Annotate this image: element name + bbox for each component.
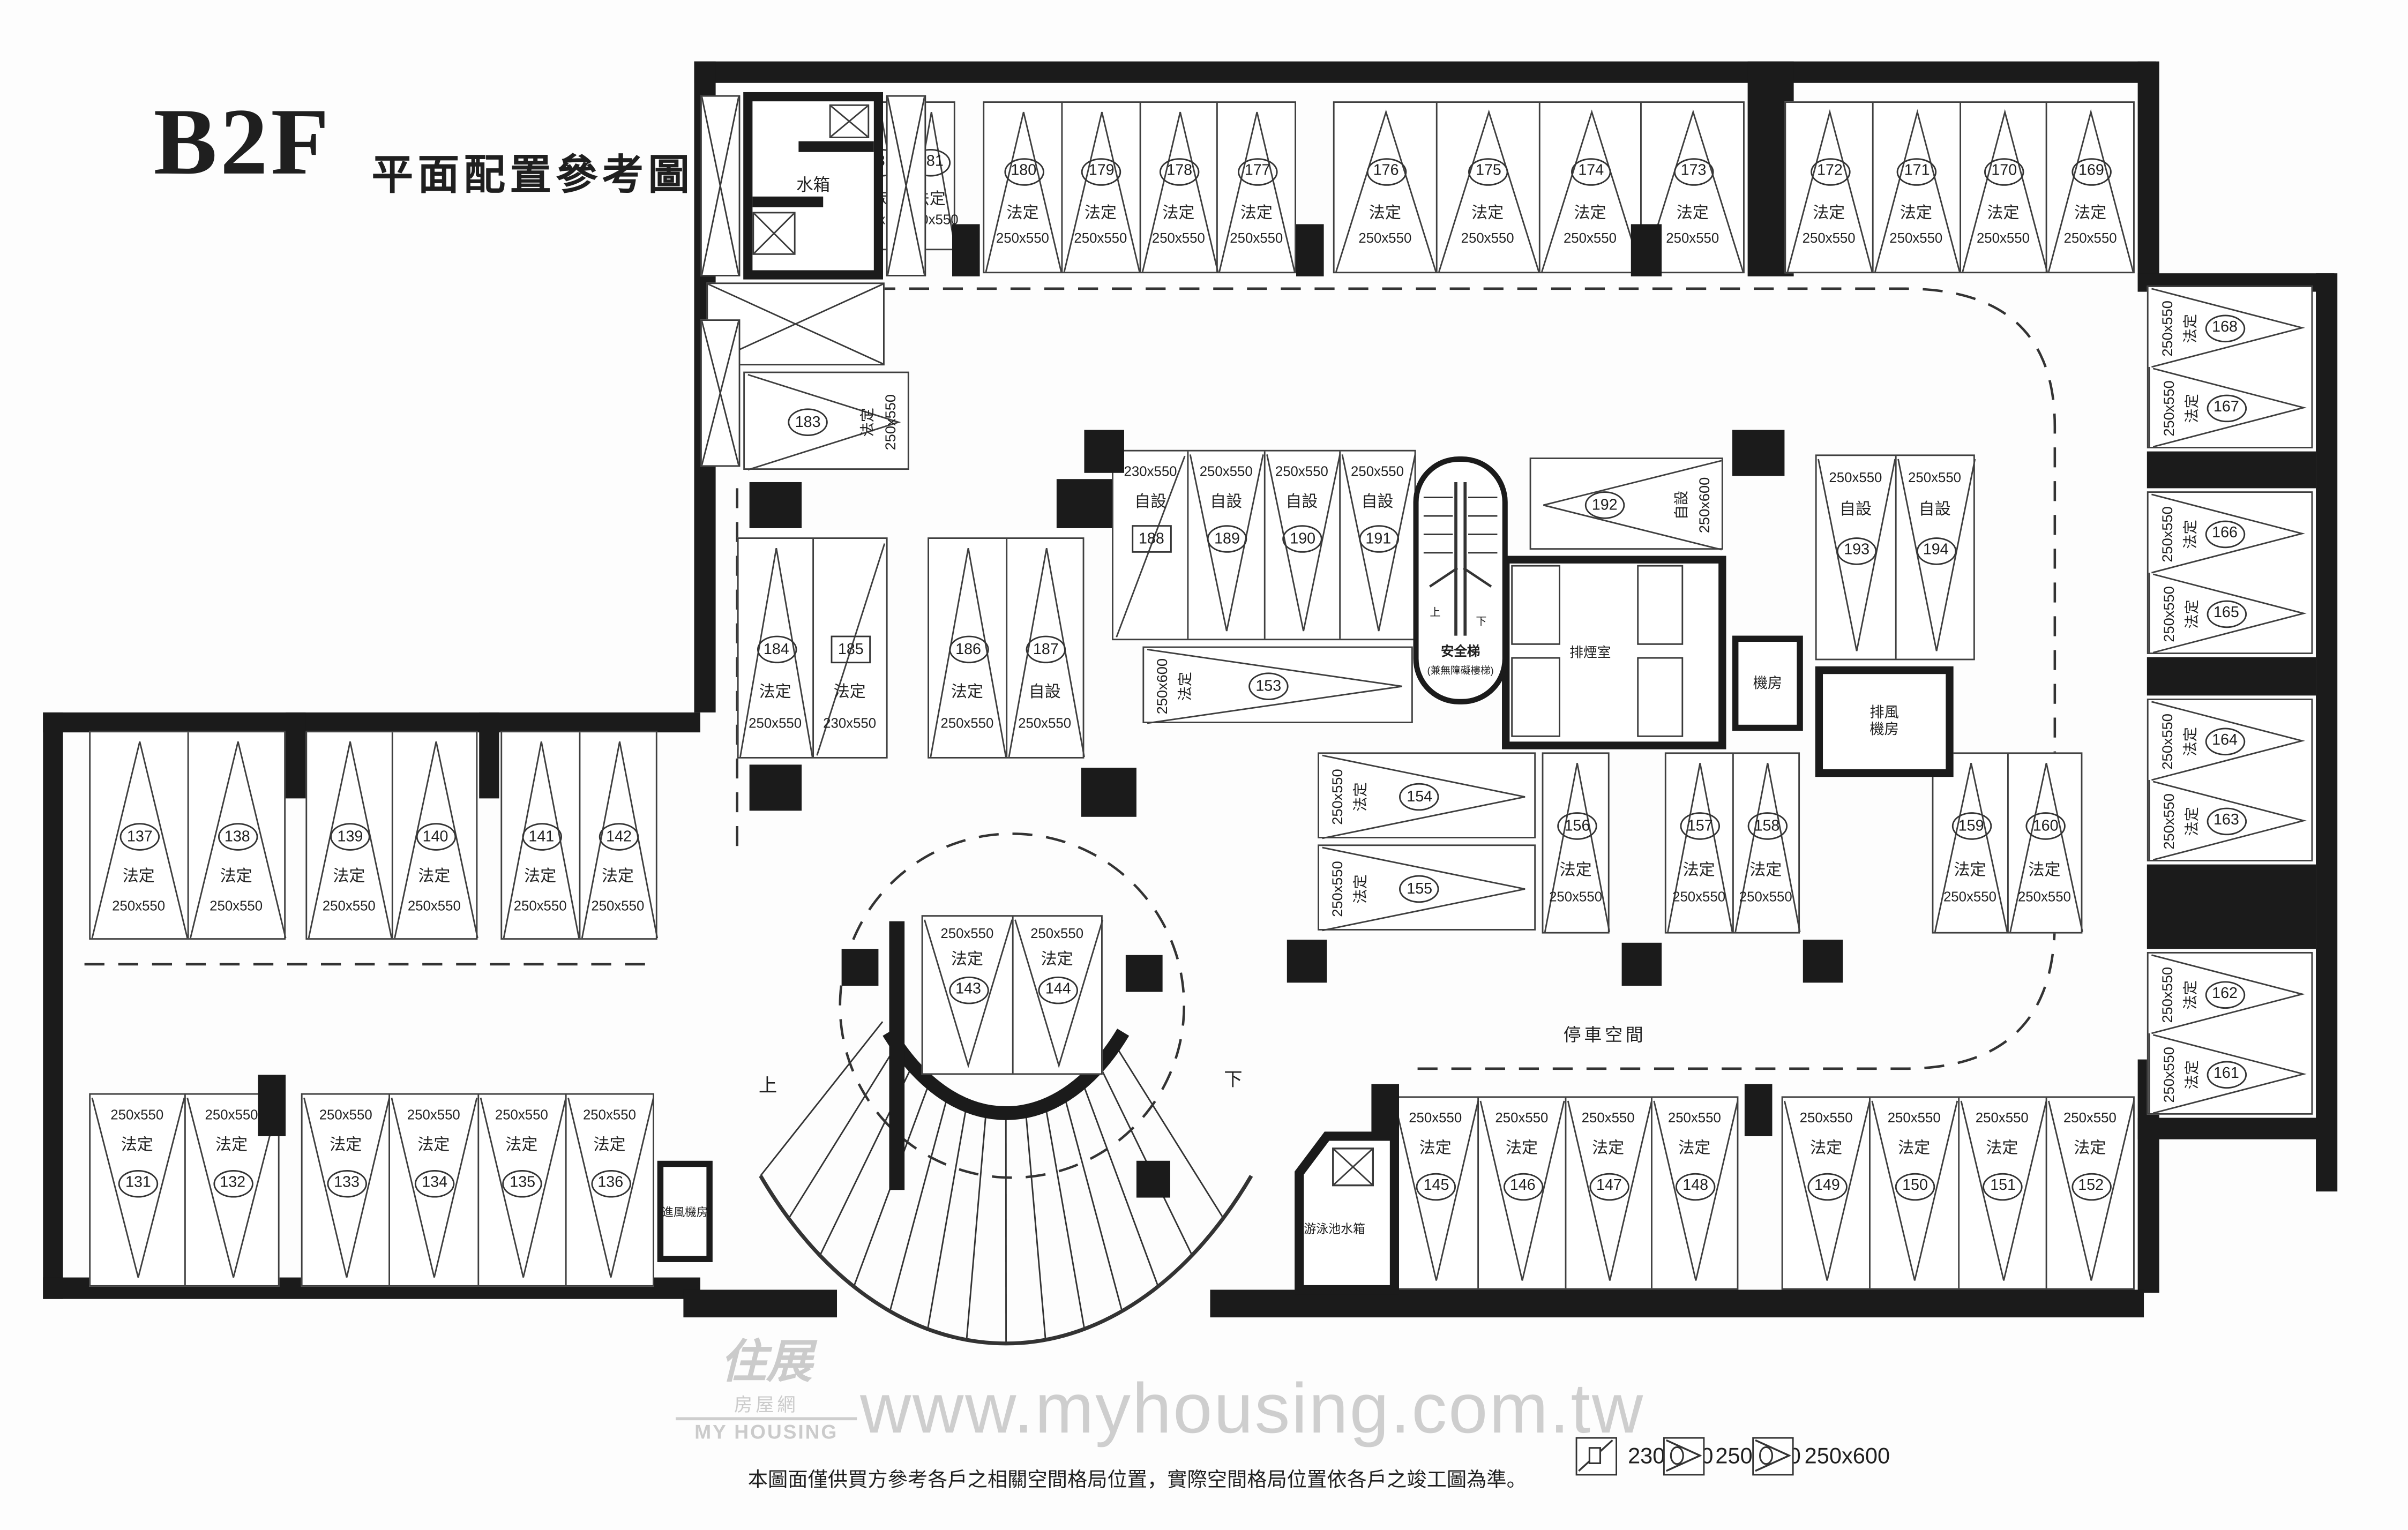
- stall-group: 法定250x550183: [743, 372, 909, 470]
- room-water-tank-label: 水箱: [796, 177, 830, 194]
- parking-stall-146: 法定250x550146: [1478, 1098, 1564, 1288]
- stall-type: 法定: [1959, 1136, 2045, 1159]
- stall-type: 法定: [580, 865, 656, 888]
- stall-number: 131: [118, 1170, 159, 1198]
- stall-number: 179: [1081, 158, 1121, 186]
- parking-stall-170: 法定250x550170: [1959, 103, 2046, 272]
- column: [286, 712, 305, 799]
- parking-stall-190: 自設250x550190: [1263, 452, 1338, 639]
- stall-size: 250x550: [739, 715, 812, 731]
- stall-size: 250x550: [1652, 1111, 1737, 1127]
- parking-stall-175: 法定250x550175: [1435, 103, 1538, 272]
- stall-number: 148: [1676, 1173, 1716, 1201]
- stall-type: 法定: [1013, 947, 1101, 970]
- stall-group: 法定250x550137法定250x550138: [89, 731, 286, 940]
- stall-group: 法定250x550145法定250x550146法定250x550147法定25…: [1392, 1096, 1739, 1289]
- stall-group: 法定250x550156: [1542, 752, 1610, 933]
- stall-type: 法定: [185, 1134, 278, 1157]
- ramp-down-label: 下: [1224, 1066, 1242, 1092]
- parking-stall-143: 法定250x550143: [923, 917, 1012, 1073]
- stall-size: 250x550: [1566, 1111, 1650, 1127]
- parking-stall-168: 250x550法定168: [2149, 287, 2312, 367]
- column: [1287, 940, 1327, 982]
- watermark-url: www.myhousing.com.tw: [860, 1367, 1644, 1450]
- column: [842, 949, 879, 986]
- wall: [2147, 452, 2316, 489]
- parking-stall-164: 250x550法定164: [2149, 700, 2312, 780]
- stall-size: 250x550: [91, 898, 186, 914]
- stall-type: 自設: [1817, 498, 1895, 521]
- stall-size: 250x550: [188, 898, 284, 914]
- stall-number: 147: [1589, 1173, 1629, 1201]
- stall-number: 152: [2071, 1173, 2111, 1201]
- stall-type: 法定: [1871, 1136, 1957, 1159]
- stall-side-label: 250x550法定: [2155, 1038, 2207, 1110]
- stall-type: 法定: [307, 865, 391, 888]
- stall-side-label: 法定250x550: [854, 378, 906, 467]
- room-smoke-label: 排煙室: [1569, 642, 1611, 662]
- wall: [2147, 657, 2316, 696]
- legend-label: 250x600: [1805, 1444, 1890, 1469]
- stall-size: 250x550: [1393, 1111, 1478, 1127]
- hatch-area: [700, 319, 741, 467]
- column: [1084, 430, 1124, 473]
- stall-group: 自設250x550193自設250x550194: [1815, 454, 1975, 660]
- column: [1745, 1084, 1773, 1136]
- stall-number: 172: [1810, 158, 1850, 186]
- parking-stall-184: 法定250x550184: [739, 539, 812, 757]
- stall-size: 250x550: [1817, 470, 1895, 486]
- stall-size: 250x550: [303, 1108, 389, 1123]
- stall-side-label: 250x550法定: [2155, 372, 2207, 444]
- parking-stall-151: 法定250x550151: [1957, 1098, 2045, 1288]
- parking-stall-153: 250x600法定153: [1144, 648, 1411, 722]
- elevator-shaft: [1511, 657, 1560, 737]
- stall-size: 250x550: [1871, 1111, 1957, 1127]
- room-intake-fan-label: 進風機房: [662, 1203, 708, 1220]
- parking-stall-131: 法定250x550131: [91, 1095, 183, 1285]
- parking-stall-145: 法定250x550145: [1393, 1098, 1478, 1288]
- stall-size: 250x550: [1896, 470, 1973, 486]
- stall-group: 法定250x550180法定250x550179法定250x550178法定25…: [983, 101, 1296, 273]
- stall-size: 250x550: [1479, 1111, 1564, 1127]
- elevator-shaft: [1637, 565, 1683, 645]
- stall-type: 自設: [1189, 489, 1263, 512]
- stall-size: 250x550: [1959, 1111, 2045, 1127]
- stall-type: 法定: [1783, 1136, 1869, 1159]
- parking-stall-136: 法定250x550136: [565, 1095, 653, 1285]
- stall-side-label: 250x550法定: [2153, 705, 2205, 777]
- wall: [2138, 62, 2159, 292]
- parking-stall-134: 法定250x550134: [389, 1095, 477, 1285]
- stall-type: 法定: [2047, 201, 2133, 224]
- stall-number: 187: [1026, 636, 1066, 664]
- stall-type: 法定: [1786, 201, 1872, 224]
- parking-stall-186: 法定250x550186: [929, 539, 1005, 757]
- stall-size: 250x550: [391, 1108, 477, 1123]
- stall-number: 135: [503, 1170, 543, 1198]
- stall-type: 法定: [1437, 201, 1538, 224]
- parking-stall-165: 250x550法定165: [2149, 573, 2312, 652]
- stall-type: 法定: [1393, 1136, 1478, 1159]
- column: [1622, 943, 1662, 986]
- parking-stall-194: 自設250x550194: [1894, 456, 1973, 658]
- stall-type: 法定: [1733, 858, 1798, 881]
- stall-size: 250x550: [566, 1108, 653, 1123]
- wall: [694, 62, 2156, 83]
- stall-side-label: 250x550法定: [2155, 577, 2207, 650]
- parking-stall-139: 法定250x550139: [307, 732, 391, 938]
- stall-size: 250x550: [923, 926, 1012, 941]
- stall-number: 144: [1038, 976, 1078, 1004]
- stall-size: 250x550: [1437, 230, 1538, 246]
- stall-side-label: 250x550法定: [1324, 759, 1376, 835]
- stall-size: 250x550: [502, 898, 578, 914]
- parking-stall-155: 250x550法定155: [1319, 846, 1534, 929]
- stall-type: 法定: [91, 1134, 183, 1157]
- stall-side-label: 250x600法定: [1149, 652, 1201, 720]
- stall-number: 142: [599, 823, 639, 851]
- stall-number: 170: [1984, 158, 2024, 186]
- stall-group: 250x600法定153: [1142, 647, 1412, 723]
- stall-side-label: 250x550法定: [2155, 785, 2207, 857]
- parking-stall-163: 250x550法定163: [2149, 780, 2312, 860]
- column: [1296, 224, 1324, 276]
- stall-group: 法定250x550149法定250x550150法定250x550151法定25…: [1782, 1096, 2135, 1289]
- parking-stall-160: 法定250x550160: [2007, 754, 2081, 932]
- parking-stall-162: 250x550法定162: [2149, 954, 2312, 1033]
- stall-group: 250x550法定164250x550法定163: [2147, 699, 2313, 861]
- parking-stall-150: 法定250x550150: [1869, 1098, 1957, 1288]
- stall-type: 法定: [1642, 201, 1743, 224]
- stall-type: 法定: [739, 680, 812, 703]
- stall-group: 法定250x550133法定250x550134法定250x550135法定25…: [301, 1093, 654, 1287]
- parking-stall-152: 法定250x550152: [2045, 1098, 2133, 1288]
- stair-up-label: 上: [1430, 605, 1440, 620]
- column: [1136, 1161, 1170, 1198]
- stall-type: 法定: [923, 947, 1012, 970]
- elevator-shaft: [1637, 657, 1683, 737]
- stall-type: 法定: [303, 1134, 389, 1157]
- stall-type: 法定: [1479, 1136, 1564, 1159]
- stall-size: 250x550: [1961, 230, 2046, 246]
- stall-number: 139: [330, 823, 370, 851]
- parking-stall-185: 法定230x550185: [812, 539, 886, 757]
- stall-group: 250x550法定155: [1318, 844, 1536, 931]
- stall-number: 186: [948, 636, 989, 664]
- stall-group: 法定250x550172法定250x550171法定250x550170法定25…: [1784, 101, 2134, 273]
- stall-number: 134: [415, 1170, 455, 1198]
- watermark-brand-bottom: MY HOUSING: [676, 1417, 857, 1443]
- parking-stall-147: 法定250x550147: [1564, 1098, 1650, 1288]
- parking-stall-169: 法定250x550169: [2046, 103, 2133, 272]
- stall-type: 法定: [1539, 201, 1640, 224]
- room-intake-fan: 進風機房: [657, 1161, 713, 1262]
- column: [1057, 479, 1112, 528]
- stall-number: 146: [1502, 1173, 1543, 1201]
- stall-type: 自設: [1265, 489, 1338, 512]
- stall-size: 250x550: [1189, 464, 1263, 479]
- stall-number: 174: [1571, 158, 1611, 186]
- stall-number: 169: [2072, 158, 2112, 186]
- parking-stall-133: 法定250x550133: [303, 1095, 389, 1285]
- room-exhaust-fan-label-2: 機房: [1869, 722, 1899, 739]
- stall-group: 250x550法定162250x550法定161: [2147, 952, 2313, 1115]
- wall: [2147, 865, 2316, 949]
- stall-type: 自設: [1896, 498, 1973, 521]
- stall-side-label: 自設250x600: [1668, 464, 1720, 547]
- stall-type: 法定: [1335, 201, 1435, 224]
- room-pool-tank: [1293, 1130, 1401, 1296]
- stall-type: 法定: [813, 680, 886, 703]
- stall-type: 法定: [1140, 201, 1217, 224]
- stall-number: 141: [521, 823, 562, 851]
- stall-size: 250x550: [91, 1108, 183, 1123]
- wall: [2316, 273, 2337, 1191]
- parking-stall-178: 法定250x550178: [1139, 103, 1216, 272]
- stall-type: 法定: [2008, 858, 2081, 881]
- disclaimer-text: 本圖面僅供買方參考各戶之相關空間格局位置，實際空間格局位置依各戶之竣工圖為準。: [748, 1463, 1527, 1492]
- legend-symbol-circle: [1752, 1437, 1793, 1476]
- stall-number: 178: [1160, 158, 1200, 186]
- stall-type: 法定: [1666, 858, 1732, 881]
- stall-type: 法定: [91, 865, 186, 888]
- parking-stall-189: 自設250x550189: [1187, 452, 1263, 639]
- watermark-brand-top: 住展: [676, 1324, 857, 1391]
- stall-size: 250x550: [1543, 889, 1607, 904]
- stall-number: 137: [120, 823, 160, 851]
- stall-number: 143: [948, 976, 989, 1004]
- stall-size: 250x550: [1140, 230, 1217, 246]
- stall-type: 法定: [1543, 858, 1607, 881]
- stall-number: 193: [1837, 537, 1877, 565]
- stall-number: 153: [1248, 672, 1289, 700]
- stall-size: 250x550: [392, 898, 476, 914]
- stall-type: 法定: [929, 680, 1005, 703]
- stall-number: 175: [1469, 158, 1509, 186]
- stall-group: 法定250x550139法定250x550140: [305, 731, 477, 940]
- parking-stall-148: 法定250x550148: [1650, 1098, 1737, 1288]
- legend-item-250x600: 250x600: [1752, 1437, 1890, 1476]
- stall-size: 250x550: [478, 1108, 565, 1123]
- parking-stall-166: 250x550法定166: [2149, 493, 2312, 573]
- stall-group: 自設230x550188自設250x550189自設250x550190自設25…: [1112, 450, 1416, 640]
- stall-size: 250x550: [1539, 230, 1640, 246]
- stall-group: 自設250x600192: [1530, 457, 1723, 550]
- stall-number: 140: [415, 823, 455, 851]
- parking-stall-177: 法定250x550177: [1217, 103, 1295, 272]
- stall-size: 230x550: [813, 715, 886, 731]
- watermark-brand: 住展 房屋網 MY HOUSING: [676, 1324, 857, 1444]
- stall-side-label: 250x550法定: [2153, 292, 2205, 364]
- ramp-up-label: 上: [759, 1072, 777, 1098]
- parking-stall-158: 法定250x550158: [1732, 754, 1799, 932]
- stall-group: 法定250x550157法定250x550158: [1665, 752, 1800, 933]
- column: [889, 921, 904, 1190]
- parking-stall-138: 法定250x550138: [186, 732, 284, 938]
- stall-number: 136: [590, 1170, 631, 1198]
- stall-size: 230x550: [1113, 464, 1187, 479]
- parking-stall-154: 250x550法定154: [1319, 754, 1534, 837]
- stall-type: 法定: [1652, 1136, 1737, 1159]
- stall-number: 145: [1416, 1173, 1456, 1201]
- safety-stair: 上 下 安全梯 (兼無障礙樓梯): [1411, 454, 1509, 706]
- legend-symbol-circle: [1663, 1437, 1704, 1476]
- stall-size: 250x550: [307, 898, 391, 914]
- stall-size: 250x550: [2008, 889, 2081, 904]
- wall: [43, 712, 63, 1299]
- room-machine-label: 機房: [1753, 675, 1783, 692]
- column: [1732, 430, 1784, 476]
- stall-number: 176: [1366, 158, 1406, 186]
- stall-type: 法定: [502, 865, 578, 888]
- column: [750, 764, 802, 811]
- stall-group: 法定250x550186自設250x550187: [928, 537, 1084, 759]
- elevator-shaft: [1511, 565, 1560, 645]
- stall-type: 自設: [1007, 680, 1083, 703]
- stall-size: 250x550: [984, 230, 1061, 246]
- stall-type: 法定: [392, 865, 476, 888]
- stall-group: 法定250x550141法定250x550142: [500, 731, 657, 940]
- column: [1631, 224, 1662, 276]
- parking-stall-137: 法定250x550137: [91, 732, 186, 938]
- room-exhaust-fan: 排風 機房: [1815, 666, 1954, 777]
- room-pool-tank-label: 游泳池水箱: [1304, 1221, 1365, 1238]
- stall-number: 173: [1673, 158, 1714, 186]
- stall-size: 250x550: [580, 898, 656, 914]
- parking-stall-135: 法定250x550135: [477, 1095, 565, 1285]
- stall-side-label: 250x550法定: [1324, 851, 1376, 927]
- stall-type: 自設: [1113, 489, 1187, 512]
- stall-number: 189: [1207, 525, 1247, 553]
- column: [479, 712, 499, 799]
- room-exhaust-fan-label-1: 排風: [1869, 705, 1899, 722]
- parking-stall-167: 250x550法定167: [2149, 367, 2312, 447]
- parking-stall-161: 250x550法定161: [2149, 1033, 2312, 1113]
- stall-number: 194: [1916, 537, 1956, 565]
- hatch-area: [752, 212, 795, 255]
- stall-number: 171: [1897, 158, 1937, 186]
- stall-number: 180: [1004, 158, 1044, 186]
- hatch-area: [700, 95, 741, 276]
- stall-type: 法定: [566, 1134, 653, 1157]
- stall-type: 法定: [1218, 201, 1295, 224]
- parking-stall-188: 自設230x550188: [1113, 452, 1187, 639]
- stall-size: 250x550: [1013, 926, 1101, 941]
- stall-number: 167: [2207, 394, 2247, 422]
- parking-stall-174: 法定250x550174: [1538, 103, 1640, 272]
- stair-label-1: 安全梯: [1441, 642, 1480, 660]
- parking-stall-144: 法定250x550144: [1011, 917, 1101, 1073]
- parking-stall-171: 法定250x550171: [1872, 103, 1959, 272]
- stall-type: 法定: [984, 201, 1061, 224]
- stall-group: 法定250x550176法定250x550175法定250x550174法定25…: [1333, 101, 1745, 273]
- parking-stall-180: 法定250x550180: [984, 103, 1061, 272]
- wall: [683, 1290, 837, 1318]
- room-machine: 機房: [1732, 636, 1803, 731]
- stall-side-label: 250x550法定: [2153, 498, 2205, 570]
- stall-type: 法定: [1873, 201, 1959, 224]
- stall-type: 法定: [1933, 858, 2006, 881]
- column: [1803, 940, 1843, 982]
- stall-size: 250x550: [1783, 1111, 1869, 1127]
- stall-group: 法定250x550143法定250x550144: [922, 915, 1103, 1075]
- floorplan-page: B2F 平面配置參考圖 水箱 進風機房 游泳池水箱 排煙室 機房 排風 機房: [0, 0, 2408, 1530]
- parking-area-label: 停車空間: [1564, 1023, 1647, 1047]
- stall-type: 自設: [1340, 489, 1414, 512]
- stall-size: 250x550: [1340, 464, 1414, 479]
- stall-size: 250x550: [1265, 464, 1338, 479]
- stall-group: 法定250x550184法定230x550185: [737, 537, 888, 759]
- parking-stall-172: 法定250x550172: [1786, 103, 1872, 272]
- stall-size: 250x550: [1933, 889, 2006, 904]
- stall-number: 132: [213, 1170, 253, 1198]
- parking-stall-140: 法定250x550140: [391, 732, 476, 938]
- stall-side-label: 250x550法定: [2153, 958, 2205, 1030]
- stall-group: 250x550法定166250x550法定165: [2147, 491, 2313, 654]
- parking-stall-142: 法定250x550142: [578, 732, 656, 938]
- column: [258, 1075, 286, 1136]
- stall-type: 法定: [188, 865, 284, 888]
- stall-number: 192: [1584, 491, 1625, 519]
- stall-size: 250x550: [1218, 230, 1295, 246]
- column: [1126, 955, 1163, 992]
- stall-size: 250x550: [1007, 715, 1083, 731]
- parking-stall-183: 法定250x550183: [745, 373, 908, 468]
- stall-size: 250x550: [2047, 230, 2133, 246]
- legend-symbol-square: [1576, 1437, 1617, 1476]
- parking-stall-191: 自設250x550191: [1339, 452, 1415, 639]
- stair-down-label: 下: [1476, 614, 1486, 629]
- stall-number: 185: [831, 636, 871, 664]
- stall-number: 133: [327, 1170, 367, 1198]
- stall-size: 250x550: [1786, 230, 1872, 246]
- wall: [43, 712, 700, 732]
- watermark-brand-mid: 房屋網: [676, 1391, 857, 1417]
- parking-stall-176: 法定250x550176: [1335, 103, 1435, 272]
- stall-size: 250x550: [1666, 889, 1732, 904]
- stair-label-2: (兼無障礙樓梯): [1427, 662, 1494, 677]
- parking-stall-193: 自設250x550193: [1817, 456, 1895, 658]
- stall-group: 法定250x550159法定250x550160: [1932, 752, 2083, 933]
- column: [952, 224, 980, 276]
- parking-stall-159: 法定250x550159: [1933, 754, 2006, 932]
- stall-group: 250x550法定168250x550法定167: [2147, 286, 2313, 448]
- column: [1371, 1084, 1399, 1136]
- stall-type: 法定: [1566, 1136, 1650, 1159]
- hatch-area: [829, 104, 870, 138]
- stall-number: 183: [788, 408, 828, 436]
- column: [1081, 768, 1136, 817]
- parking-stall-141: 法定250x550141: [502, 732, 578, 938]
- stall-number: 177: [1237, 158, 1277, 186]
- stall-group: 250x550法定154: [1318, 752, 1536, 838]
- stall-number: 184: [757, 636, 797, 664]
- parking-stall-157: 法定250x550157: [1666, 754, 1732, 932]
- stall-size: 250x550: [929, 715, 1005, 731]
- hatch-area: [886, 95, 926, 276]
- stall-number: 149: [1807, 1173, 1848, 1201]
- parking-stall-187: 自設250x550187: [1005, 539, 1083, 757]
- stall-type: 法定: [1961, 201, 2046, 224]
- column: [750, 482, 802, 528]
- stall-size: 250x550: [2047, 1111, 2133, 1127]
- parking-stall-192: 自設250x600192: [1531, 459, 1722, 548]
- stall-size: 250x550: [1873, 230, 1959, 246]
- stall-number: 138: [218, 823, 258, 851]
- parking-stall-179: 法定250x550179: [1061, 103, 1139, 272]
- parking-stall-149: 法定250x550149: [1783, 1098, 1869, 1288]
